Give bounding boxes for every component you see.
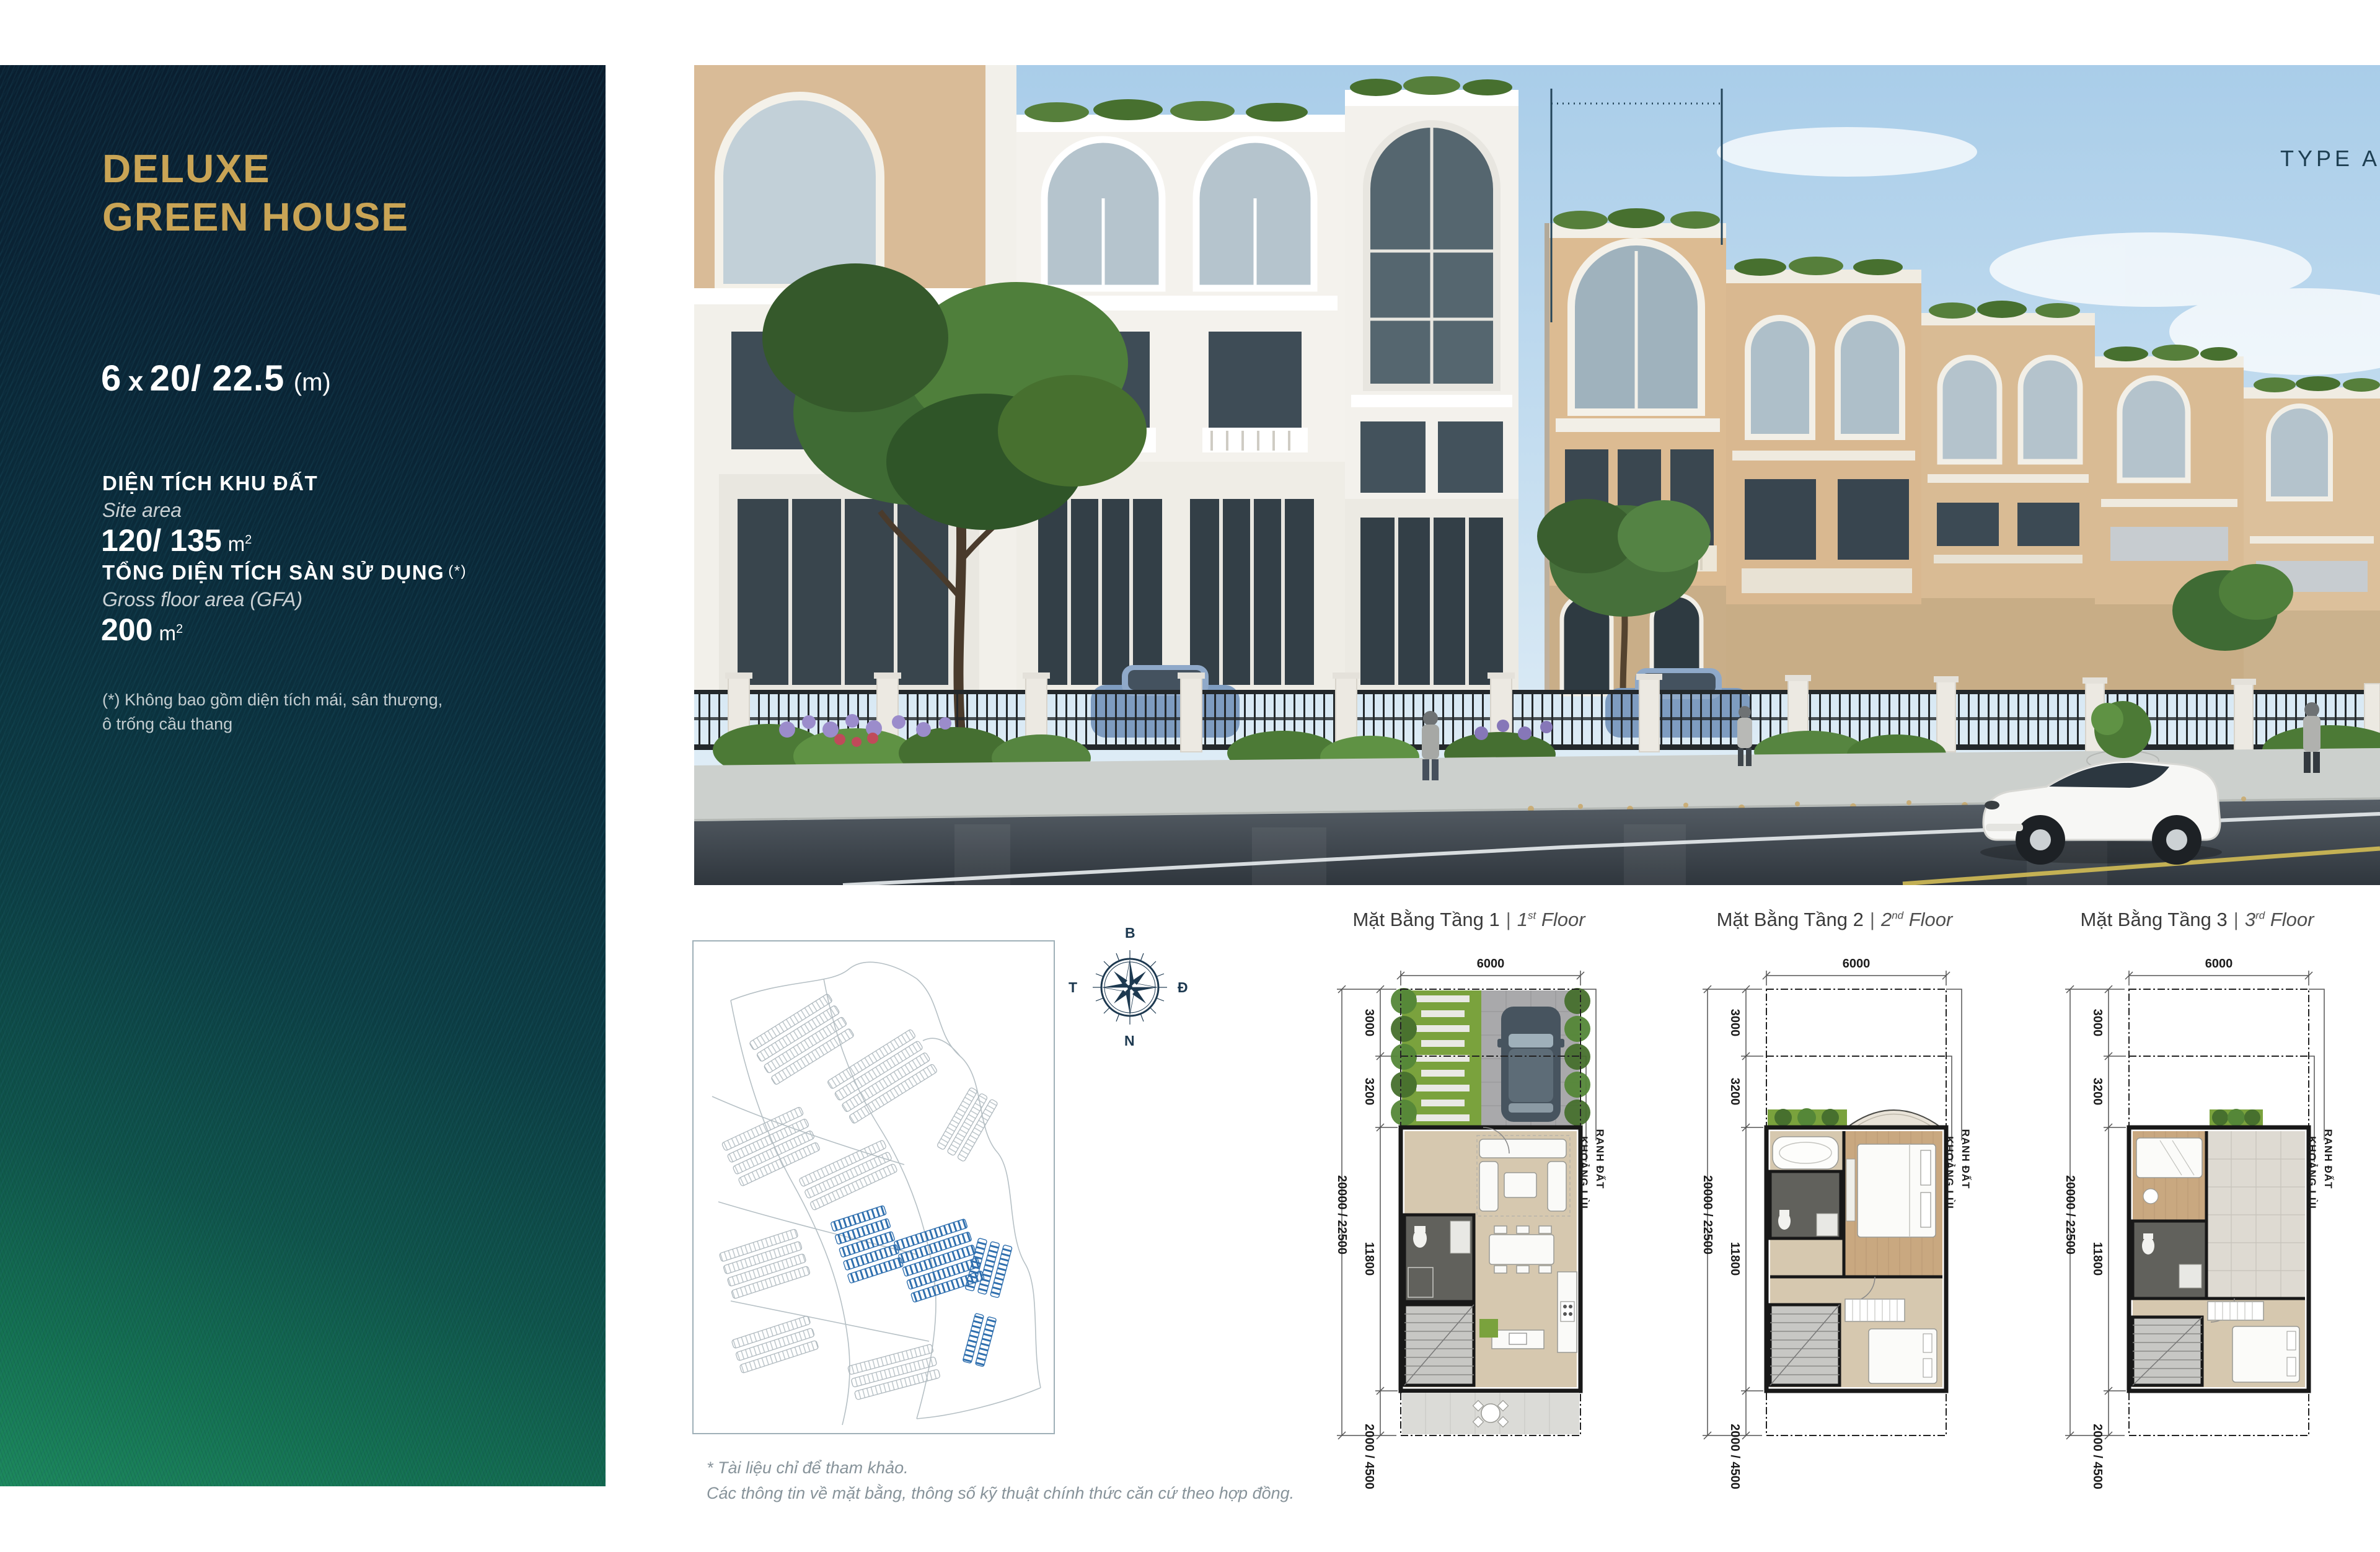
disclaimer-line1: * Tài liệu chỉ để tham khảo. (707, 1455, 1294, 1481)
dim-front: 3000 (2089, 985, 2105, 1060)
gfa-label-vi: TỔNG DIỆN TÍCH SÀN SỬ DỤNG(*) (102, 561, 467, 584)
site-area-number: 120/ 135 (101, 523, 222, 558)
page-title: DELUXE GREEN HOUSE (102, 144, 409, 241)
floor-plan-1: Mặt Bằng Tầng 1|1st Floor (1323, 955, 1615, 1525)
dim-rear: 2000 / 4500 (1727, 1395, 1743, 1519)
gfa-unit: m (159, 622, 176, 645)
dim-overall: 20000 / 22500 (2062, 1134, 2078, 1295)
page-title-line2: GREEN HOUSE (102, 193, 409, 241)
site-map-drawing (694, 941, 1054, 1433)
floor-plan-2: Mặt Bằng Tầng 2|2nd Floor (1689, 955, 1980, 1525)
lot-width: 6 (101, 358, 121, 399)
lot-unit: (m) (288, 369, 331, 396)
dim-body: 11800 (2089, 1222, 2105, 1296)
dim-body: 11800 (1727, 1222, 1743, 1296)
panel-footnote-line1: (*) Không bao gồm diện tích mái, sân thư… (102, 688, 443, 712)
brochure-page: DELUXE GREEN HOUSE 6 x 20/ 22.5 (m) DIỆN… (0, 0, 2380, 1552)
lot-dimensions: 6 x 20/ 22.5 (m) (101, 358, 331, 399)
floor-word: Floor (1541, 909, 1585, 930)
floor-plan-1-title: Mặt Bằng Tầng 1|1st Floor (1323, 909, 1615, 931)
gfa-label-en: Gross floor area (GFA) (102, 588, 302, 611)
floor-ordinal: 2 (1881, 909, 1892, 930)
compass-icon: B Đ N T (1083, 941, 1176, 1034)
dim-front2: 3200 (1727, 1054, 1743, 1129)
dim-rear: 2000 / 4500 (2089, 1395, 2105, 1519)
floor-word: Floor (2270, 909, 2314, 930)
lot-depth: 20/ 22.5 (150, 358, 285, 399)
dim-front2: 3200 (1361, 1054, 1377, 1129)
dim-width: 6000 (1401, 957, 1580, 971)
gfa-number: 200 (101, 612, 152, 647)
dim-front: 3000 (1361, 985, 1377, 1060)
dim-width: 6000 (1766, 957, 1946, 971)
site-map-highlighted-lots (831, 1206, 1012, 1367)
site-area-label-vi: DIỆN TÍCH KHU ĐẤT (102, 472, 318, 495)
label-setback: KHOẢNG LÙI (2304, 1120, 2320, 1225)
gfa-sup: 2 (176, 622, 183, 636)
site-area-label-en: Site area (102, 499, 182, 522)
lot-times: x (125, 366, 147, 397)
dim-body: 11800 (1361, 1222, 1377, 1296)
gfa-star: (*) (444, 563, 467, 580)
label-setback: KHOẢNG LÙI (1941, 1120, 1957, 1225)
floor-plan-2-title-vi: Mặt Bằng Tầng 2 (1717, 909, 1864, 930)
floor-ordinal: 1 (1517, 909, 1528, 930)
floor-ordinal: 3 (2245, 909, 2255, 930)
gfa-value: 200m2 (101, 612, 183, 648)
floor-plan-3-title-vi: Mặt Bằng Tầng 3 (2081, 909, 2228, 930)
compass-west-label: T (1069, 979, 1077, 996)
compass-south-label: N (1124, 1033, 1135, 1049)
floor-word: Floor (1909, 909, 1953, 930)
site-area-sup: 2 (245, 533, 252, 547)
floor-plan-3-title: Mặt Bằng Tầng 3|3rd Floor (2052, 909, 2343, 931)
panel-footnote-line2: ô trống cầu thang (102, 712, 443, 736)
dim-width: 6000 (2129, 957, 2309, 971)
compass-north-label: B (1125, 925, 1135, 941)
title-separator: | (1500, 909, 1517, 930)
site-area-value: 120/ 135m2 (101, 522, 252, 558)
dim-front: 3000 (1727, 985, 1743, 1060)
label-setback: KHOẢNG LÙI (1576, 1120, 1592, 1225)
floor-ordinal-suffix: nd (1892, 910, 1903, 922)
title-separator: | (1864, 909, 1881, 930)
site-area-unit: m (228, 532, 245, 555)
panel-footnote: (*) Không bao gồm diện tích mái, sân thư… (102, 688, 443, 736)
floor-plan-1-title-vi: Mặt Bằng Tầng 1 (1352, 909, 1499, 930)
disclaimer: * Tài liệu chỉ để tham khảo. Các thông t… (707, 1455, 1294, 1506)
label-boundary: RANH ĐẤT (1592, 1113, 1608, 1206)
building-rendering: TYPE A (694, 65, 2380, 885)
floor-plan-2-title: Mặt Bằng Tầng 2|2nd Floor (1689, 909, 1980, 931)
dim-rear: 2000 / 4500 (1361, 1395, 1377, 1519)
floor-ordinal-suffix: rd (2255, 910, 2265, 922)
dim-front2: 3200 (2089, 1054, 2105, 1129)
info-panel: DELUXE GREEN HOUSE 6 x 20/ 22.5 (m) DIỆN… (0, 65, 606, 1486)
dim-overall: 20000 / 22500 (1699, 1134, 1716, 1295)
dim-overall: 20000 / 22500 (1334, 1134, 1350, 1295)
compass-east-label: Đ (1178, 979, 1188, 996)
rendering-illustration (694, 65, 2380, 885)
floor-plan-3: Mặt Bằng Tầng 3|3rd Floor (2052, 955, 2343, 1525)
gfa-label-vi-text: TỔNG DIỆN TÍCH SÀN SỬ DỤNG (102, 561, 444, 584)
label-boundary: RANH ĐẤT (1957, 1113, 1973, 1206)
label-boundary: RANH ĐẤT (2320, 1113, 2336, 1206)
site-map (692, 940, 1055, 1434)
disclaimer-line2: Các thông tin về mặt bằng, thông số kỹ t… (707, 1481, 1294, 1506)
page-title-line1: DELUXE (102, 144, 409, 193)
floor-ordinal-suffix: st (1528, 910, 1536, 922)
title-separator: | (2228, 909, 2245, 930)
type-a-label: TYPE A (2268, 146, 2380, 172)
